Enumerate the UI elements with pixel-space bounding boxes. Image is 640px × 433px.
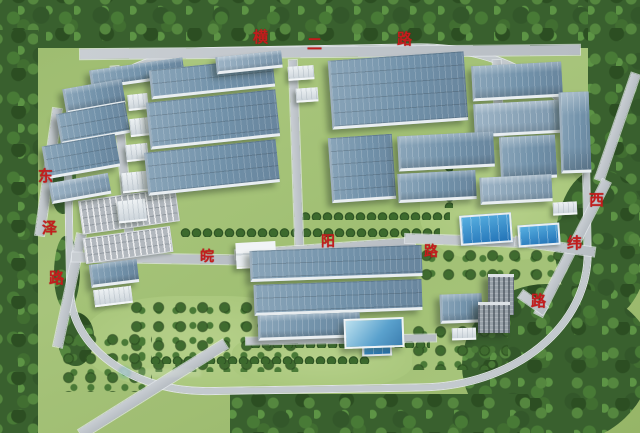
factory-building [471,62,563,102]
watermark [118,366,204,380]
factory-building [559,92,592,174]
service-building [117,199,147,224]
road-label-char: 横 [253,30,268,45]
factory-building [440,293,483,323]
service-building [296,87,319,103]
factory-building [397,132,495,172]
water-basin-small [517,223,560,248]
road-label-char: 路 [397,32,412,47]
glass-office-building [343,317,404,349]
watermark-text-smudge [135,369,201,377]
road-label-char: 路 [531,294,546,309]
road-label-char: 阳 [321,235,335,249]
watermark-logo-icon [118,366,131,379]
industrial-park-aerial-rendering: 横 二 路 东 泽 路 皖 阳 路 西 纬 路 [0,0,640,433]
utility-building [452,328,476,341]
road-label-char: 纬 [567,236,582,251]
forest-west [0,30,38,433]
road-label-char: 西 [589,193,604,208]
office-tower [478,302,510,333]
service-building [288,65,315,81]
road-label-char: 二 [307,37,322,52]
road-label-char: 路 [49,271,64,286]
road-label-char: 东 [38,169,53,184]
road-label-char: 泽 [42,221,57,236]
service-building [121,171,149,194]
road-label-char: 皖 [200,250,214,264]
factory-building [328,134,396,203]
factory-building [479,174,552,205]
water-basin-large [459,212,513,246]
forest-south [230,394,530,433]
factory-building [397,170,476,203]
utility-building [553,201,578,215]
factory-building [254,279,423,316]
road-label-char: 路 [424,245,438,259]
factory-building [250,245,423,282]
factory-building-large [328,51,468,129]
